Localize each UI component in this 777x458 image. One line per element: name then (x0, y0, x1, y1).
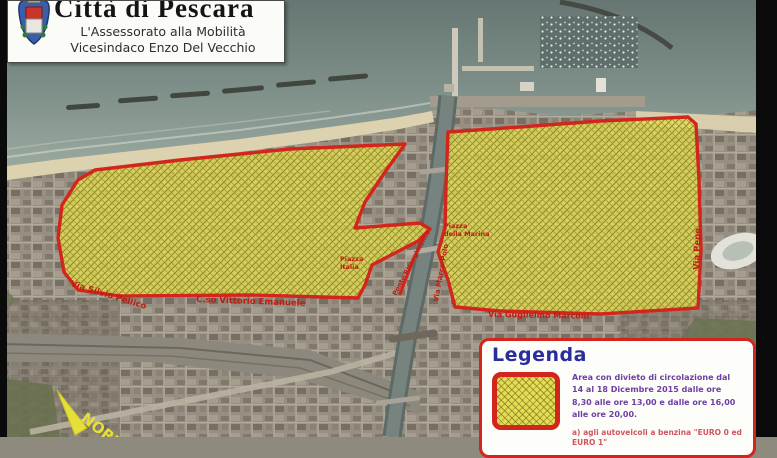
header-subtitle-2: Vicesindaco Enzo Del Vecchio (42, 40, 284, 56)
header-subtitle-1: L'Assessorato alla Mobilità (42, 24, 284, 40)
label-piazza-italia-2: Italia (340, 263, 359, 271)
header-plate: Città di Pescara L'Assessorato alla Mobi… (7, 0, 285, 63)
label-piazza-della-marina-2: della Marina (444, 230, 489, 238)
label-piazza-della-marina-1: Piazza (444, 222, 467, 230)
label-via-guglielmo-marconi: Via Guglielmo Marconi (488, 310, 590, 321)
label-via-pepe: Via Pepe (692, 228, 703, 270)
label-piazza-italia-1: Piazza (340, 255, 363, 263)
pescara-coat-of-arms-icon (16, 0, 52, 51)
legend-title: Legenda (492, 344, 743, 366)
scan-edge-left (0, 0, 7, 437)
scan-edge-right (756, 0, 777, 437)
legend-description: Area con divieto di circolazione dal 14 … (572, 372, 743, 422)
city-title: Città di Pescara (54, 0, 284, 24)
legend-panel: Legenda Area con divieto di circolazione… (479, 338, 756, 458)
restricted-zone-right (438, 117, 701, 314)
legend-item-a: a) agli autoveicoli a benzina "EURO 0 ed… (572, 428, 743, 448)
restricted-zone-swatch (492, 372, 560, 430)
